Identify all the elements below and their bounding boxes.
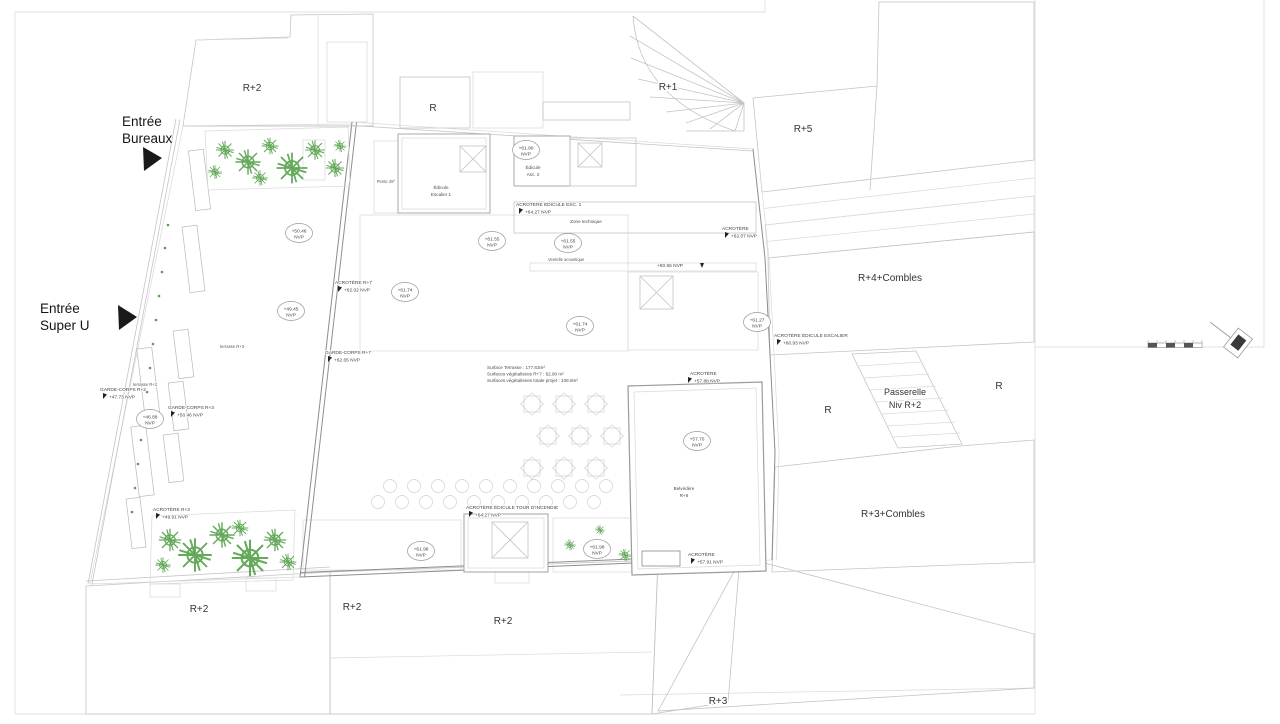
svg-text:ACROTÈRE: ACROTÈRE <box>690 370 717 377</box>
surface-line-2: Surfaces végétalisées R+7 : 62.90 m² <box>487 372 564 377</box>
svg-text:ACROTÈRE ÉDICULE ESCALIER: ACROTÈRE ÉDICULE ESCALIER <box>774 332 848 339</box>
svg-text:GARDE-CORPS R+2: GARDE-CORPS R+2 <box>100 387 146 393</box>
entrance-bureaux-label-1: Entrée <box>122 114 162 129</box>
roof-label-r5: R+5 <box>794 124 813 135</box>
ventelle-label: Ventelle acoustique <box>548 257 585 262</box>
svg-text:ACROTÈRE R+7: ACROTÈRE R+7 <box>335 279 372 286</box>
pente-label: Pente 28° <box>377 179 396 184</box>
svg-text:+61.90: +61.90 <box>519 146 534 152</box>
svg-text:+62.65 NVP: +62.65 NVP <box>334 358 360 364</box>
building-nw-r2: R+2 <box>183 14 373 126</box>
svg-text:+49.91 NVP: +49.91 NVP <box>162 515 188 521</box>
svg-text:+61.27: +61.27 <box>750 318 765 324</box>
entrance-superu-label-1: Entrée <box>40 301 80 316</box>
svg-text:NVP: NVP <box>521 152 531 158</box>
svg-text:+57.88 NVP: +57.88 NVP <box>694 379 720 385</box>
svg-text:+50.46 NVP: +50.46 NVP <box>177 413 203 419</box>
svg-text:GARDE-CORPS R+3: GARDE-CORPS R+3 <box>168 405 214 411</box>
svg-text:+46.88: +46.88 <box>143 415 158 421</box>
svg-text:+61.55: +61.55 <box>485 237 500 243</box>
svg-text:NVP: NVP <box>400 294 410 300</box>
level-annotation: ACROTÈRE ÉDICULE ESCALIER+60.93 NVP <box>774 332 848 347</box>
svg-text:+49.45: +49.45 <box>284 307 299 313</box>
stair-hatch <box>543 102 630 120</box>
roof-label-r-top: R <box>429 103 436 114</box>
north-arrow-icon <box>1210 322 1252 358</box>
roof-label-r3-se: R+3 <box>709 696 728 707</box>
roof-r1-fan: R+1 <box>630 16 744 131</box>
entrance-super-u: Entrée Super U <box>40 301 137 333</box>
level-marker: +49.45NVP <box>278 302 305 321</box>
svg-text:ACROTÈRE: ACROTÈRE <box>688 551 715 558</box>
scale-bar <box>1148 340 1202 348</box>
entrance-bureaux: Entrée Bureaux <box>122 114 173 171</box>
entrance-arrow-icon <box>143 147 162 171</box>
skylight-icon <box>640 276 673 309</box>
planter-diamond-motifs <box>521 393 624 480</box>
level-marker: +61.27NVP <box>744 313 771 332</box>
level-annotation: GARDE-CORPS R+2+47.73 NVP <box>100 387 146 401</box>
belvedere-label-1: Belvédère <box>674 486 695 491</box>
roof-label-r1: R+1 <box>659 82 678 93</box>
svg-text:NVP: NVP <box>416 553 426 559</box>
svg-text:+64.27 NVP: +64.27 NVP <box>525 210 551 216</box>
roof-label-r2-s1: R+2 <box>343 602 362 613</box>
edicule-tour-incendie <box>464 514 548 572</box>
svg-text:+57.70: +57.70 <box>690 437 705 443</box>
level-marker: +46.88NVP <box>137 410 164 429</box>
level-annotation: ACROTÈRE ÉDICULE ESC. 1+64.27 NVP <box>516 201 582 216</box>
edicule-asc2-label-1: Édicule <box>525 164 541 170</box>
level-marker: +57.70NVP <box>684 432 711 451</box>
svg-text:NVP: NVP <box>286 313 296 319</box>
svg-text:NVP: NVP <box>575 328 585 334</box>
roof-label-r2-nw: R+2 <box>243 83 262 94</box>
edicule-asc2-label-2: Asc. 2 <box>527 172 540 177</box>
roof-r5: R+5 <box>753 2 1034 192</box>
roof-label-r-right: R <box>995 381 1002 392</box>
svg-text:+61.98: +61.98 <box>414 547 429 553</box>
passerelle-band: R R Passerelle Niv R+2 <box>824 351 1002 448</box>
roof-se-r3: R+3 <box>658 557 1034 711</box>
level-marker: +61.74NVP <box>567 317 594 336</box>
svg-text:+57.91 NVP: +57.91 NVP <box>697 560 723 566</box>
svg-text:NVP: NVP <box>294 235 304 241</box>
roof-label-r-left: R <box>824 405 831 416</box>
terrasse-r2-label: terrasse R+2 <box>133 382 158 387</box>
roof-label-r2-s2: R+2 <box>494 616 513 627</box>
svg-text:NVP: NVP <box>563 245 573 251</box>
edicule-escalier-1: Édicule Escalier 1 Pente 28° <box>374 134 490 213</box>
level-marker: +61.55NVP <box>479 232 506 251</box>
svg-text:+61.55: +61.55 <box>561 239 576 245</box>
svg-text:NVP: NVP <box>752 324 762 330</box>
pente-roof <box>374 141 398 213</box>
level-marker: +61.55NVP <box>555 234 582 253</box>
edicule-esc1-label-2: Escalier 1 <box>431 192 452 197</box>
svg-text:+61.98: +61.98 <box>590 545 605 551</box>
svg-text:NVP: NVP <box>487 243 497 249</box>
entrance-bureaux-label-2: Bureaux <box>122 131 173 146</box>
svg-text:+62.07 NVP: +62.07 NVP <box>731 234 757 240</box>
roof-r-top: R <box>400 72 630 128</box>
level-marker: +50.46NVP <box>286 224 313 243</box>
roof-label-r4-combles: R+4+Combles <box>858 273 922 284</box>
svg-text:+62.02 NVP: +62.02 NVP <box>344 288 370 294</box>
svg-text:NVP: NVP <box>692 443 702 449</box>
level-marker: +61.98NVP <box>584 540 611 559</box>
ventelle-acoustique: Ventelle acoustique <box>530 257 756 271</box>
level-annotation: ACROTÈRE+62.07 NVP <box>722 225 757 240</box>
zone-technique-label: Zone technique <box>570 219 602 224</box>
roof-label-r2-sw: R+2 <box>190 604 209 615</box>
svg-text:ACROTÈRE ÉDICULE ESC. 1: ACROTÈRE ÉDICULE ESC. 1 <box>516 201 582 208</box>
west-wing-planters <box>126 149 211 548</box>
entrance-superu-label-2: Super U <box>40 318 90 333</box>
svg-text:NVP: NVP <box>145 421 155 427</box>
passerelle-label-2: Niv R+2 <box>889 400 921 410</box>
roof-plan-drawing: R+2 R R+1 R+5 R+4+Combles R R Passerelle… <box>0 0 1280 724</box>
svg-text:+61.74: +61.74 <box>573 322 588 328</box>
level-annotation: ACROTÈRE R+7+62.02 NVP <box>335 279 372 294</box>
svg-text:+60.55 NVP: +60.55 NVP <box>657 263 683 269</box>
svg-text:ACROTÈRE ÉDICULE TOUR D'INCEND: ACROTÈRE ÉDICULE TOUR D'INCENDIE <box>466 504 558 511</box>
svg-text:+61.74: +61.74 <box>398 288 413 294</box>
svg-text:ACROTÈRE R+3: ACROTÈRE R+3 <box>153 506 190 513</box>
roof-r3-combles: R+3+Combles <box>772 440 1034 572</box>
level-annotation: ACROTÈRE+57.88 NVP <box>688 370 720 385</box>
svg-text:NVP: NVP <box>592 551 602 557</box>
svg-text:+47.73 NVP: +47.73 NVP <box>109 395 135 401</box>
gravel-area-lower <box>303 520 461 570</box>
roof-s-r2: R+2 R+2 <box>330 557 740 714</box>
svg-text:+50.46: +50.46 <box>292 229 307 235</box>
surface-line-3: Surfaces végétalisées totale projet : 10… <box>487 378 578 383</box>
surface-line-1: Surface Terrasse : 177.63m² <box>487 365 545 370</box>
belvedere: Belvédère R+6 <box>628 382 766 575</box>
svg-text:+60.93 NVP: +60.93 NVP <box>783 341 809 347</box>
svg-text:GARDE-CORPS R+7: GARDE-CORPS R+7 <box>325 350 371 356</box>
planting-bed-top <box>205 127 350 190</box>
belvedere-label-2: R+6 <box>680 493 689 498</box>
level-marker: +61.98NVP <box>408 542 435 561</box>
svg-text:ACROTÈRE: ACROTÈRE <box>722 225 749 232</box>
svg-text:+64.27 NVP: +64.27 NVP <box>475 513 501 519</box>
terrasse-r3-label: terrasse R+3 <box>220 344 245 349</box>
skylight-icon <box>578 143 602 167</box>
entrance-arrow-icon <box>118 305 137 330</box>
level-marker: +61.90NVP <box>513 141 540 160</box>
level-annotation: ACROTÈRE R+3+49.91 NVP <box>153 506 190 521</box>
level-annotation: GARDE-CORPS R+7+62.65 NVP <box>325 350 371 364</box>
level-annotation: +60.55 NVP <box>657 263 683 269</box>
passerelle-label-1: Passerelle <box>884 387 926 397</box>
roof-sw-r2: R+2 <box>86 567 529 714</box>
edicule-esc1-label-1: Édicule <box>433 184 449 190</box>
terrace-furniture <box>372 393 624 509</box>
roof-r4-combles: R+4+Combles <box>764 178 1035 355</box>
roof-label-r3-combles: R+3+Combles <box>861 509 925 520</box>
level-marker: +61.74NVP <box>392 283 419 302</box>
surface-note: Surface Terrasse : 177.63m² Surfaces vég… <box>487 365 578 383</box>
